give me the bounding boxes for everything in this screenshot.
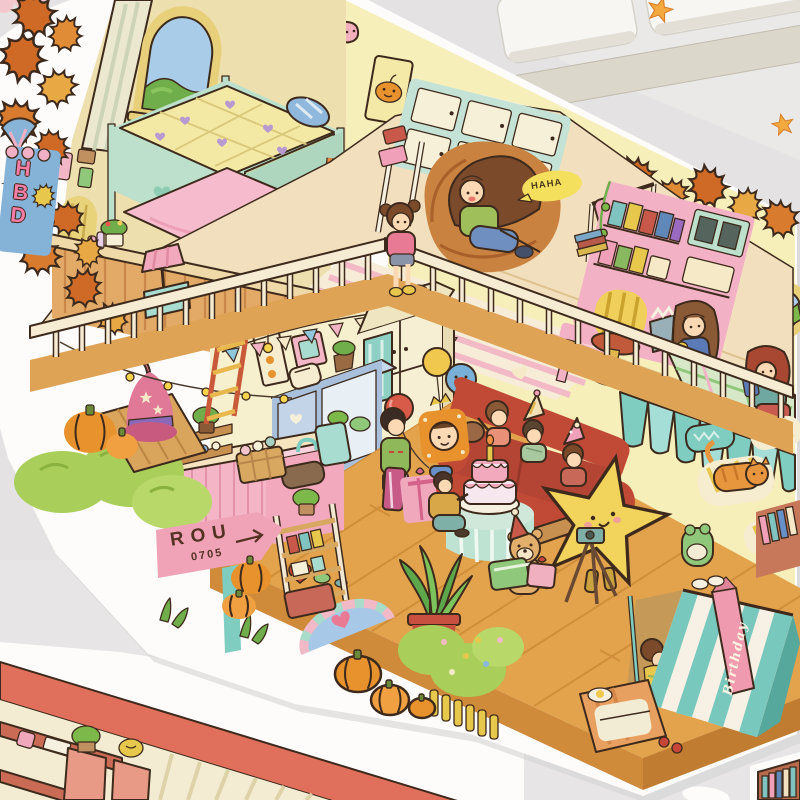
photo-of-sticker-scene: HBD ROU 0705 HAHA Birthday: [0, 0, 800, 800]
dispenser: [315, 422, 351, 467]
illustration: [0, 0, 800, 800]
book-crate: [756, 500, 800, 578]
frog-plush: [682, 524, 713, 566]
